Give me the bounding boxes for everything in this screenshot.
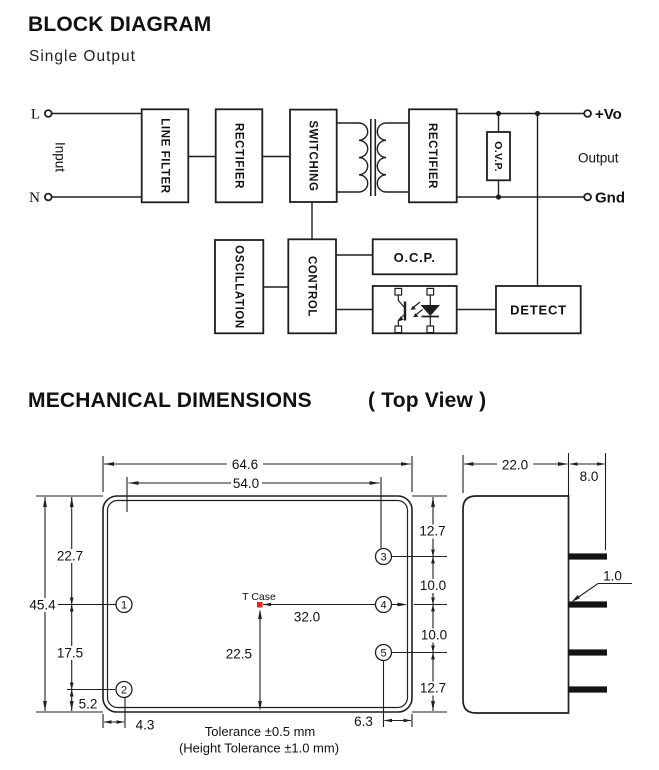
gnd-terminal <box>584 194 591 201</box>
mechanical-title: MECHANICAL DIMENSIONS <box>28 389 312 412</box>
dim-edge-to-pin-left: 4.3 <box>136 718 155 733</box>
line-label: L <box>31 107 40 123</box>
dim-pin-thickness: 1.0 <box>603 569 622 584</box>
pin-1-number: 1 <box>121 599 127 611</box>
pin-4-number: 4 <box>380 599 386 611</box>
input-group-label: Input <box>53 142 68 172</box>
dim-pin4-to-pin5: 10.0 <box>421 628 447 643</box>
dim-pin-span: 54.0 <box>233 476 259 491</box>
line-terminal <box>45 110 52 117</box>
side-pin-4 <box>569 601 608 607</box>
neutral-label: N <box>29 190 40 206</box>
vo-terminal <box>584 110 591 117</box>
dim-top-to-pin1: 22.7 <box>57 549 83 564</box>
height-tolerance-note: (Height Tolerance ±1.0 mm) <box>179 741 339 756</box>
detect-label: DETECT <box>510 303 567 318</box>
transformer-symbol <box>337 119 409 196</box>
oscillation-label: OSCILLATION <box>233 245 245 329</box>
dim-pin3-to-pin4: 10.0 <box>420 578 446 593</box>
pin-2-number: 2 <box>121 684 127 696</box>
neutral-terminal <box>45 194 52 201</box>
dim-top-to-pin3: 12.7 <box>419 524 445 539</box>
line-filter-label: LINE FILTER <box>159 118 171 193</box>
control-label: CONTROL <box>306 256 318 317</box>
input-rectifier-label: RECTIFIER <box>233 123 245 189</box>
pin-5-number: 5 <box>380 647 386 659</box>
dim-pin5-to-bottom: 12.7 <box>420 681 446 696</box>
output-group-label: Output <box>578 151 619 166</box>
gnd-label: Gnd <box>595 190 625 207</box>
dim-tcase-to-bottom: 22.5 <box>226 647 252 662</box>
dim-tcase-to-pin4: 32.0 <box>294 610 320 625</box>
side-view-body <box>463 496 569 713</box>
block-diagram-title: BLOCK DIAGRAM <box>28 13 211 36</box>
side-pin-3 <box>569 553 608 559</box>
dim-pin-to-edge-right: 6.3 <box>354 714 373 729</box>
side-view-pins <box>569 553 608 692</box>
switching-label: SWITCHING <box>307 120 319 191</box>
side-pin-2 <box>569 686 608 692</box>
datasheet-figure: BLOCK DIAGRAM Single Output <box>0 0 659 770</box>
vo-label: +Vo <box>595 106 622 123</box>
tcase-label: T Case <box>242 591 276 603</box>
dim-pin1-to-pin2: 17.5 <box>57 646 83 661</box>
side-view: 22.0 8.0 1.0 <box>463 453 632 713</box>
block-diagram-subtitle: Single Output <box>29 48 136 65</box>
ocp-label: O.C.P. <box>394 250 436 265</box>
optocoupler-box <box>373 286 457 333</box>
output-rectifier-label: RECTIFIER <box>426 123 438 189</box>
dim-case-width: 64.6 <box>232 457 258 472</box>
block-boxes <box>142 109 581 333</box>
datasheet-page: BLOCK DIAGRAM Single Output <box>0 0 659 770</box>
pin-3-number: 3 <box>380 551 386 563</box>
top-view-label: ( Top View ) <box>368 389 486 412</box>
ovp-label: O.V.P. <box>492 141 504 171</box>
dim-pin2-to-bottom: 5.2 <box>79 697 98 712</box>
dim-pin-length: 8.0 <box>580 469 599 484</box>
side-pin-5 <box>569 649 608 655</box>
dim-body-depth: 22.0 <box>502 458 528 473</box>
tolerance-note: Tolerance ±0.5 mm <box>205 724 315 739</box>
dim-case-height: 45.4 <box>29 598 56 613</box>
